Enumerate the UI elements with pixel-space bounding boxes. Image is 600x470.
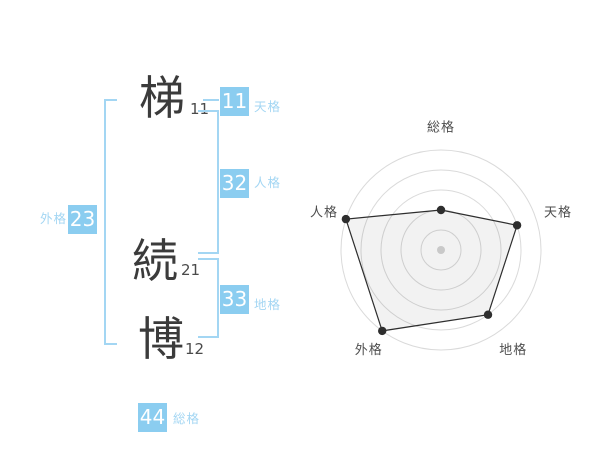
radar-chart: 総格天格地格外格人格	[0, 0, 600, 470]
radar-axis-label: 地格	[499, 342, 527, 358]
radar-axis-label: 総格	[427, 120, 455, 136]
radar-axis-label: 外格	[355, 342, 383, 358]
radar-axis-label: 天格	[544, 205, 572, 221]
name-analysis-panel: 梯 11 続 21 博 12 11 天格 32 人格 33 地格 外格 23 4…	[0, 0, 600, 470]
radar-axis-label: 人格	[310, 205, 338, 221]
